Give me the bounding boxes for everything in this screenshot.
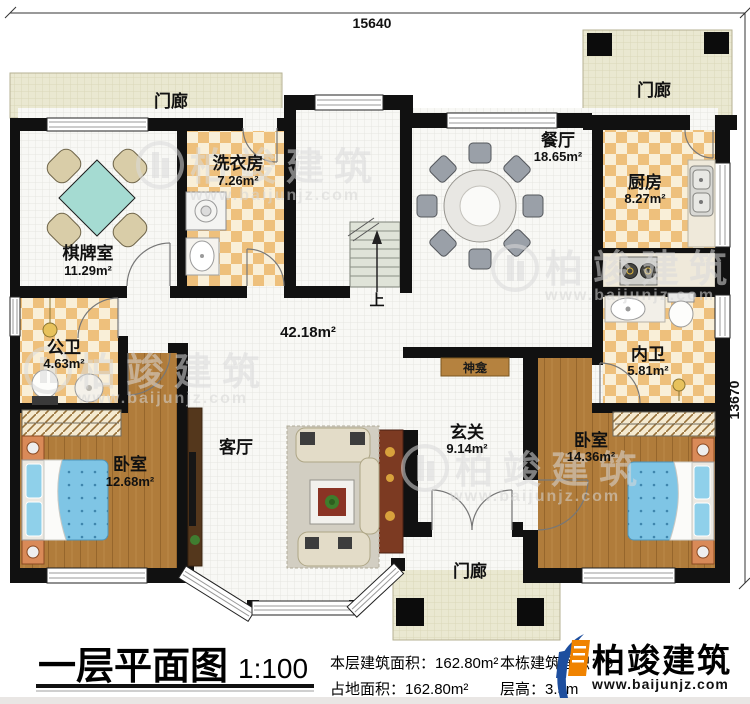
label-bedroom-left: 卧室 <box>113 454 147 474</box>
label-porch-bottom: 门廊 <box>453 561 487 581</box>
window-inner-bath-right <box>715 295 730 338</box>
svg-text:www.baijunjz.com: www.baijunjz.com <box>77 390 248 407</box>
tv-wall <box>188 408 202 566</box>
chess-table-set <box>43 145 150 250</box>
pillow <box>26 464 42 498</box>
svg-text:柏竣建筑: 柏竣建筑 <box>78 352 270 394</box>
svg-text:www.baijunjz.com: www.baijunjz.com <box>189 187 360 204</box>
plant <box>190 535 200 545</box>
plan-title: 一层平面图 <box>38 646 228 688</box>
logo-url: www.baijunjz.com <box>591 676 729 692</box>
sofa-pillow <box>305 537 319 549</box>
floor-drain <box>673 379 685 391</box>
window-kitchen-right <box>715 163 730 247</box>
sofa-pillow <box>338 537 352 549</box>
area-dining: 18.65m² <box>534 149 583 164</box>
label-public-bath: 公卫 <box>47 338 81 357</box>
floor-plan-image: 15640 13670 <box>0 0 750 704</box>
tv <box>189 452 196 526</box>
logo-text: 柏竣建筑 <box>592 642 732 679</box>
pillow <box>694 466 710 499</box>
area-public-bath: 4.63m² <box>43 356 85 371</box>
area-inner-bath: 5.81m² <box>627 363 669 378</box>
sofa-set <box>287 426 379 568</box>
sofa-pillow <box>300 432 315 445</box>
label-inner-bath: 内卫 <box>631 344 665 364</box>
svg-text:柏竣建筑: 柏竣建筑 <box>455 450 647 492</box>
toilet <box>669 301 693 327</box>
area-foyer: 9.14m² <box>446 441 488 456</box>
shower-head <box>43 323 57 337</box>
label-porch-top: 门廊 <box>154 91 188 111</box>
area-bedroom-right: 14.36m² <box>567 449 616 464</box>
window-stair-top <box>315 95 383 110</box>
label-stairs-up: 上 <box>369 292 384 309</box>
window-bedroom-right-bottom <box>582 568 675 583</box>
label-dining: 餐厅 <box>541 130 575 150</box>
area-hall: 42.18m² <box>280 324 336 341</box>
svg-text:柏竣建筑: 柏竣建筑 <box>545 249 737 291</box>
dimension-top-width: 15640 <box>353 15 392 31</box>
bedroom-right-alcove-floor <box>538 358 592 413</box>
label-bedroom-right: 卧室 <box>574 430 608 450</box>
floor-area-line: 本层建筑面积：162.80m² <box>330 655 498 672</box>
label-foyer: 玄关 <box>450 422 484 442</box>
shrine-label: 神龛 <box>463 360 488 375</box>
sofa-pillow <box>350 432 365 445</box>
window-chess-top <box>47 118 148 131</box>
sideboard-cabinet <box>378 430 403 553</box>
svg-text:www.baijunjz.com: www.baijunjz.com <box>544 287 715 304</box>
window-public-bath-left <box>10 297 20 336</box>
plan-scale: 1:100 <box>238 653 308 684</box>
shrine: 神龛 <box>441 358 509 376</box>
label-chess-room: 棋牌室 <box>63 243 114 263</box>
area-bedroom-left: 12.68m² <box>106 474 155 489</box>
page-bottom-strip <box>0 697 750 704</box>
pillow <box>694 503 710 536</box>
window-dining-top <box>447 113 557 128</box>
pillow <box>26 502 42 536</box>
label-kitchen: 厨房 <box>628 172 662 192</box>
window-bedroom-left-bottom <box>47 568 147 583</box>
floor-plan-svg: 15640 13670 <box>0 0 750 704</box>
area-kitchen: 8.27m² <box>624 191 666 206</box>
svg-text:www.baijunjz.com: www.baijunjz.com <box>449 488 620 505</box>
area-laundry: 7.26m² <box>217 173 259 188</box>
label-laundry: 洗衣房 <box>213 153 264 173</box>
sofa-chaise <box>360 458 379 534</box>
area-chess-room: 11.29m² <box>64 263 112 278</box>
label-living: 客厅 <box>218 437 253 457</box>
land-area-line: 占地面积：162.80m² <box>330 681 468 698</box>
staircase <box>348 218 400 292</box>
label-porch-right: 门廊 <box>637 80 671 100</box>
